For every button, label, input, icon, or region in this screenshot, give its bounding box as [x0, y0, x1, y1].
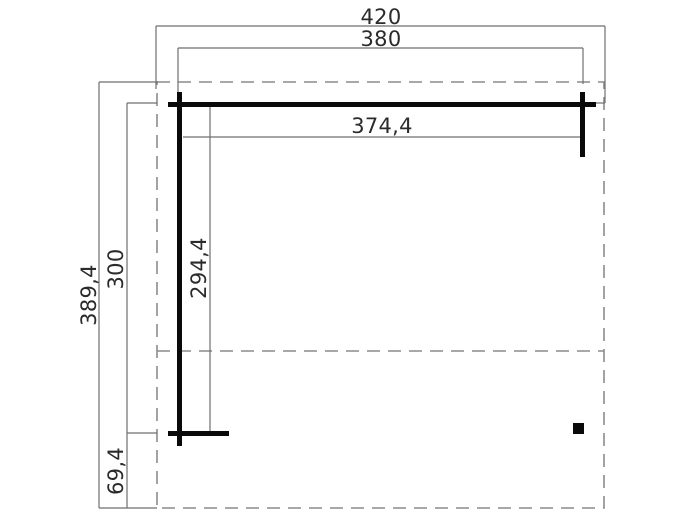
roof-outline-dashed — [157, 82, 604, 508]
dim-inner-depth-label: 294,4 — [187, 237, 211, 299]
post-anchor-square — [573, 423, 584, 434]
structure-group — [168, 92, 596, 446]
dim-beam-length-label: 374,4 — [351, 114, 413, 138]
dim-front-overhang-label: 69,4 — [104, 447, 128, 495]
dim-side-depth-label: 300 — [104, 249, 128, 290]
dim-overall-depth-label: 389,4 — [77, 264, 101, 326]
roof-outline-group — [157, 82, 604, 508]
dim-post-spacing-label: 380 — [361, 27, 402, 51]
technical-drawing-page: 420 380 374,4 389,4 300 294,4 69,4 — [0, 0, 700, 525]
dim-overall-width-label: 420 — [361, 5, 402, 29]
carport-plan-drawing: 420 380 374,4 389,4 300 294,4 69,4 — [0, 0, 700, 525]
